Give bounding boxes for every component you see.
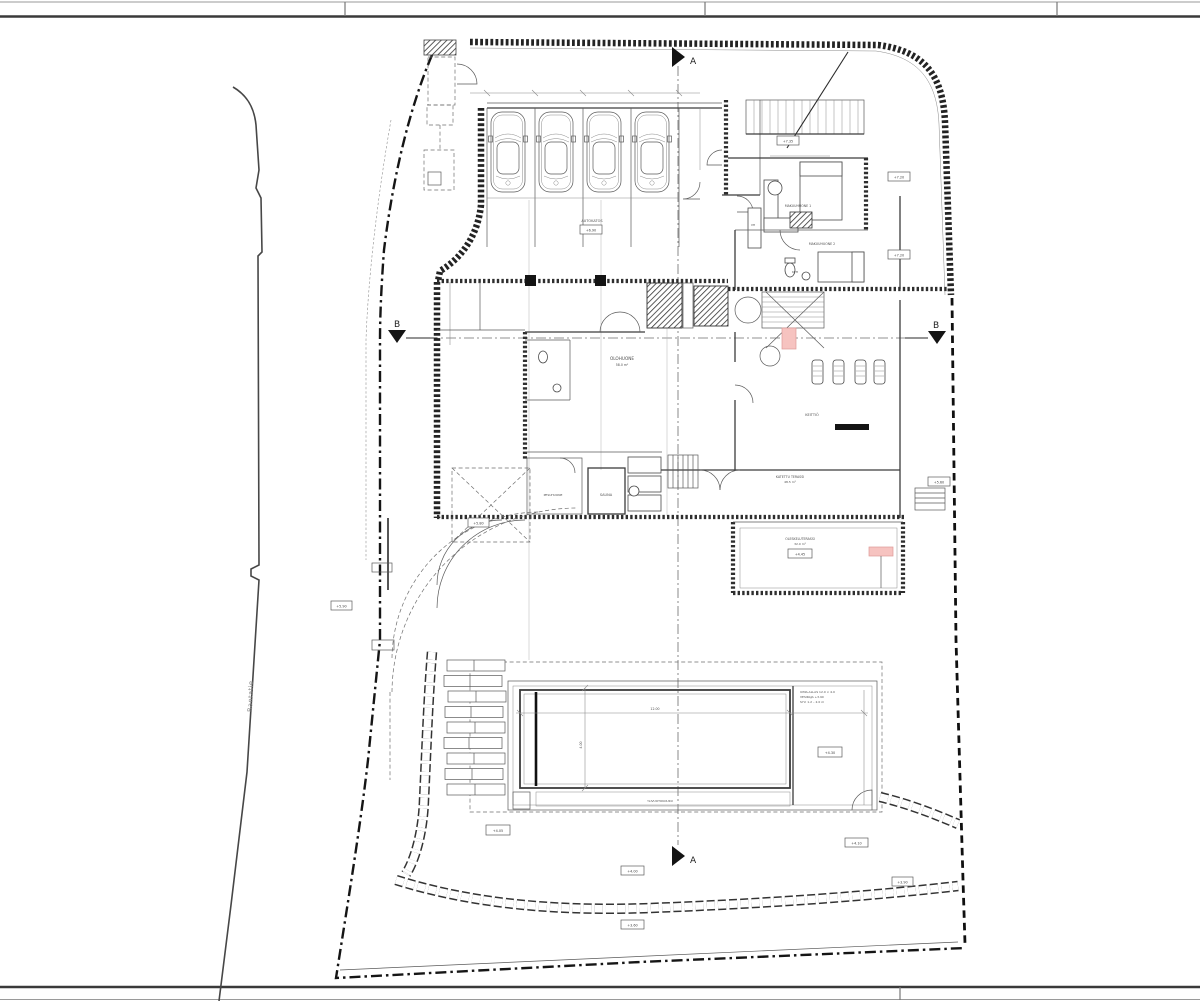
pool-note-1: UIMA-ALLAS 12.0 × 4.0 bbox=[800, 690, 835, 694]
stone-steps bbox=[444, 660, 506, 795]
road-edge: Rantatie bbox=[219, 87, 262, 1001]
elevation-label: +4.10 bbox=[851, 842, 861, 846]
service-shaft bbox=[694, 286, 728, 326]
elevation-label: +3.90 bbox=[897, 881, 907, 885]
lounge-chair-1 bbox=[812, 360, 823, 384]
pool-note-3: SYV. 1.2 – 2.0 m bbox=[800, 700, 824, 704]
section-marker-a-bottom: A bbox=[672, 846, 697, 866]
rock-wall-south bbox=[396, 880, 958, 909]
kitchen-island bbox=[835, 424, 869, 430]
section-letter-a-bottom: A bbox=[690, 856, 697, 866]
room-labels: AUTOKATOS OLOHUONE 58.0 m² KEITTIÖ MAKUU… bbox=[544, 204, 836, 546]
section-marker-b-left: B bbox=[388, 320, 437, 343]
elevation-label: +4.30 bbox=[825, 751, 835, 755]
road-name-label: Rantatie bbox=[246, 680, 255, 712]
pool-basin bbox=[520, 690, 790, 788]
car-3 bbox=[585, 112, 624, 192]
east-steps bbox=[915, 488, 945, 510]
lounge-chair-3 bbox=[855, 360, 866, 384]
section-letter-a-top: A bbox=[690, 57, 697, 67]
boundary-east-dashed bbox=[952, 298, 965, 944]
section-marker-a-top: A bbox=[672, 47, 697, 67]
elevation-label: +7.20 bbox=[894, 176, 904, 180]
terrace-area-label: 48.5 m² bbox=[784, 480, 797, 484]
car-4 bbox=[633, 112, 672, 192]
washroom-label: PESUHUONE bbox=[544, 493, 563, 497]
elevation-label: +3.60 bbox=[627, 924, 637, 928]
lounge-chair-2 bbox=[833, 360, 844, 384]
upper-stair-treads bbox=[754, 100, 858, 134]
closet bbox=[748, 208, 761, 248]
kitchen-label: KEITTIÖ bbox=[805, 412, 819, 417]
rock-wall-west bbox=[406, 652, 432, 874]
elevation-label: +5.80 bbox=[473, 522, 483, 526]
elevation-label: +4.45 bbox=[795, 553, 805, 557]
garage bbox=[437, 103, 728, 518]
entry-core bbox=[722, 100, 760, 212]
section-letter-b-left: B bbox=[394, 320, 400, 330]
pool-fence bbox=[470, 662, 882, 812]
gate-2 bbox=[372, 640, 394, 650]
bedroom-wing bbox=[728, 52, 948, 290]
section-letter-b-right: B bbox=[933, 321, 939, 331]
boundary-offset-line bbox=[366, 120, 391, 560]
lower-terrace-label: OLESKELUTERASSI bbox=[785, 537, 815, 541]
pool-width-dim: 12.00 bbox=[650, 707, 659, 711]
elevation-label: +5.60 bbox=[934, 481, 944, 485]
section-marker-b-right: B bbox=[905, 321, 946, 344]
car-2 bbox=[537, 112, 576, 192]
retaining-edge-line bbox=[340, 942, 958, 970]
adjacent-sheet-edge-bottom bbox=[0, 987, 1200, 1000]
sauna-block bbox=[437, 452, 905, 517]
sauna-label: SAUNA bbox=[600, 493, 613, 497]
elevation-label: +4.00 bbox=[627, 870, 637, 874]
sink bbox=[802, 272, 810, 280]
pool-area: 12.00 4.00 UIMA-ALLAS 12.0 × 4.0 VESIRAJ… bbox=[470, 662, 882, 812]
gate-1 bbox=[372, 563, 392, 572]
pool-note-2: VESIRAJA +3.90 bbox=[800, 695, 824, 699]
bedroom2-label: MAKUUHUONE 2 bbox=[809, 242, 835, 246]
bath-label: KPH bbox=[792, 270, 798, 274]
elevation-label: +6.90 bbox=[586, 229, 596, 233]
lower-terrace-room bbox=[733, 522, 903, 593]
lounge-chair-4 bbox=[874, 360, 885, 384]
wc-toilet bbox=[539, 351, 548, 363]
terrace-steps bbox=[668, 455, 698, 488]
closet-label: VH bbox=[751, 223, 755, 227]
boundary-wall-hatched bbox=[470, 42, 951, 295]
floor-plan-drawing: Rantatie bbox=[0, 0, 1200, 1001]
entrance-shed bbox=[424, 40, 477, 190]
elevation-label: +7.20 bbox=[894, 254, 904, 258]
pool-height-dim: 4.00 bbox=[579, 741, 583, 748]
overflow-label: YLIVUOTOKOURU bbox=[647, 799, 673, 803]
elevation-label: +5.90 bbox=[336, 605, 346, 609]
terrace-label: KATETTU TERASSI bbox=[776, 475, 804, 479]
elevation-label: +7.35 bbox=[783, 140, 793, 144]
stove bbox=[629, 486, 639, 496]
adjacent-sheet-edge-top bbox=[0, 2, 1200, 17]
fireplace-shaft bbox=[647, 283, 682, 328]
grid-lines bbox=[450, 90, 700, 660]
terrace-stair-highlight bbox=[869, 547, 893, 556]
garage-label: AUTOKATOS bbox=[581, 219, 603, 223]
site-plan-sheet: Rantatie bbox=[0, 0, 1200, 1001]
rock-wall-southeast bbox=[880, 797, 958, 824]
car-1 bbox=[489, 112, 528, 192]
elevation-label: +4.05 bbox=[493, 829, 503, 833]
lower-terrace-area-label: 32.0 m² bbox=[794, 542, 807, 546]
bedroom1-label: MAKUUHUONE 1 bbox=[785, 204, 811, 208]
living-label: OLOHUONE bbox=[610, 356, 634, 361]
living-area-label: 58.0 m² bbox=[616, 363, 629, 367]
stair-highlight bbox=[782, 328, 796, 349]
chair bbox=[768, 181, 782, 195]
sauna-bench bbox=[628, 457, 661, 473]
